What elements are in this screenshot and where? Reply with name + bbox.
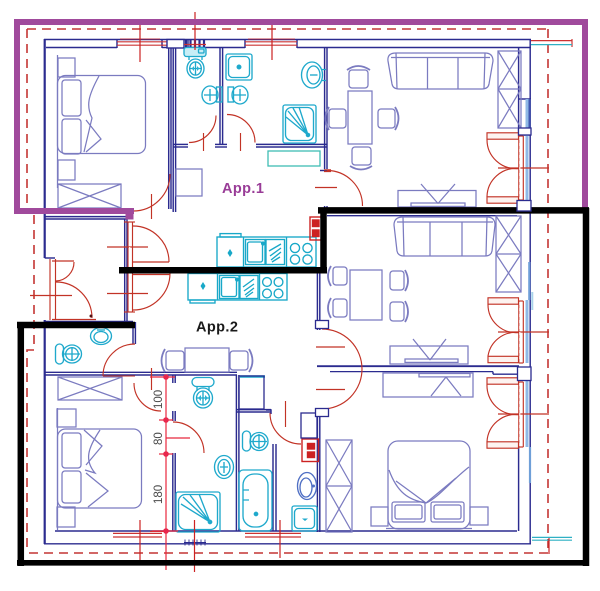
svg-text:100: 100 xyxy=(153,390,165,409)
svg-text:App.2: App.2 xyxy=(196,320,238,336)
svg-text:180: 180 xyxy=(153,485,165,504)
svg-text:80: 80 xyxy=(153,432,165,445)
svg-text:App.1: App.1 xyxy=(222,181,264,197)
